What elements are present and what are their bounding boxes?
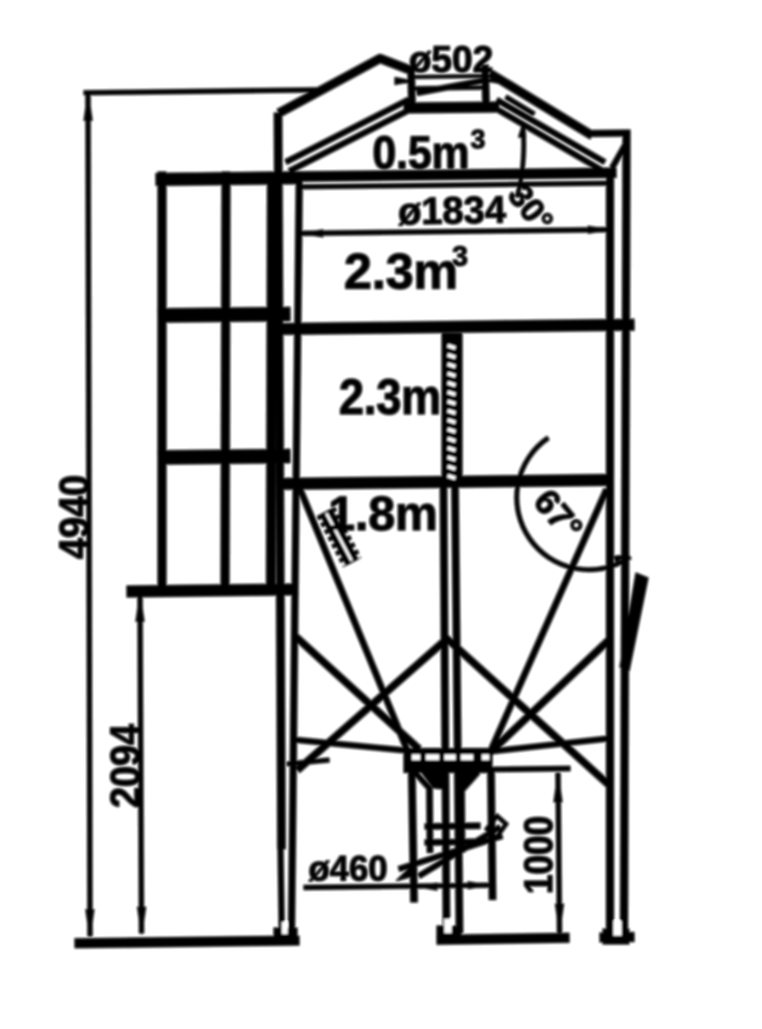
svg-text:0.5m: 0.5m [373, 127, 470, 179]
svg-text:1000: 1000 [517, 816, 561, 894]
svg-text:3: 3 [471, 124, 485, 154]
svg-text:2.3m: 2.3m [339, 369, 441, 425]
svg-text:3: 3 [452, 241, 468, 272]
svg-text:2.3m: 2.3m [344, 244, 458, 300]
svg-text:4940: 4940 [51, 475, 98, 559]
svg-text:ø460: ø460 [309, 850, 388, 889]
svg-text:1.8m: 1.8m [328, 488, 437, 541]
svg-text:ø502: ø502 [409, 39, 493, 80]
svg-text:ø1834: ø1834 [398, 190, 506, 234]
svg-text:2094: 2094 [102, 723, 149, 808]
